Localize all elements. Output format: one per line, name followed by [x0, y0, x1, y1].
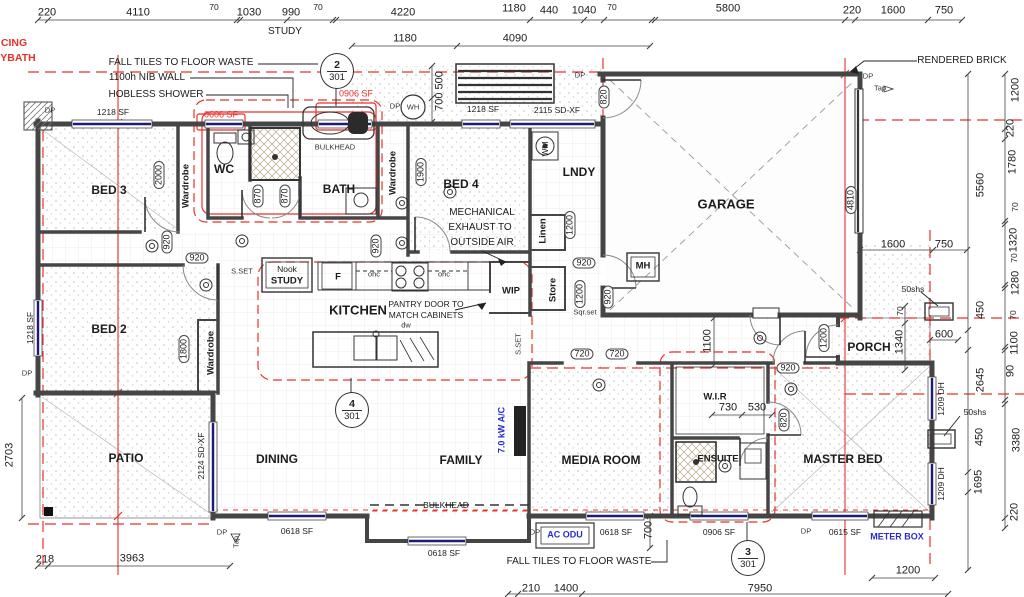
- ac-odu-label: AC ODU: [547, 531, 583, 540]
- downpipe-label: DP: [863, 72, 873, 80]
- dim-label: 730: [719, 403, 737, 414]
- door-size-tag: 1200: [819, 324, 830, 352]
- washing-machine-label: WM: [541, 141, 550, 156]
- door-size-tag: 1200: [565, 211, 576, 239]
- dim-label: 1780: [1008, 150, 1019, 174]
- annotation: PANTRY DOOR TO: [388, 300, 463, 309]
- door-size-tag: 870: [280, 184, 291, 207]
- window-label: 1218 SF: [97, 108, 129, 117]
- door-size-tag: 920: [572, 258, 595, 269]
- downpipe-label: DP: [45, 106, 55, 114]
- dim-label: 1340: [895, 330, 906, 354]
- door-size-tag: 820: [779, 408, 790, 431]
- room-label-bed3: BED 3: [91, 184, 126, 196]
- post-label: 50shs: [964, 408, 987, 417]
- dim-label: 600: [935, 330, 953, 341]
- room-label-wc: WC: [214, 163, 234, 175]
- annotation: EXHAUST TO: [448, 223, 511, 233]
- edge-text: CING: [1, 38, 27, 49]
- downpipe-label: DP: [390, 102, 400, 110]
- dim-label: 1040: [572, 6, 596, 17]
- dim-label: 1180: [393, 34, 417, 45]
- drawing-ref-circle: 2 301: [320, 53, 354, 89]
- dim-label: 750: [935, 6, 953, 17]
- door-size-tag: 1800: [179, 335, 190, 363]
- dishwasher-label: dw: [401, 321, 411, 329]
- dim-label: 220: [843, 6, 861, 17]
- annotation: 1100h NIB WALL: [109, 73, 185, 83]
- room-label-patio: PATIO: [109, 452, 144, 464]
- dim-label: 70: [896, 306, 905, 315]
- annotation: Sqr.set: [573, 308, 596, 316]
- room-label-wardrobe: Wardrobe: [181, 164, 191, 208]
- dim-label: 4220: [391, 8, 415, 19]
- dim-label: 4110: [126, 8, 150, 19]
- dim-label: 530: [748, 403, 766, 414]
- room-label-dining: DINING: [256, 453, 298, 465]
- dim-label: 220: [1010, 503, 1021, 521]
- ref-sheet: 301: [740, 559, 756, 570]
- window-label: 0618 SF: [428, 549, 460, 558]
- room-label-bed4: BED 4: [443, 178, 478, 190]
- dim-label: 5800: [716, 4, 740, 15]
- dim-label: 1030: [237, 8, 261, 19]
- dim-label: 2645: [976, 368, 987, 392]
- door-size-tag: 2000: [154, 161, 165, 189]
- downpipe-label: DP: [217, 528, 227, 536]
- annotation: BULKHEAD: [315, 143, 355, 151]
- dim-label: 1100: [703, 329, 714, 353]
- dim-label: 1600: [881, 6, 905, 17]
- dim-label: 210: [522, 584, 540, 595]
- dim-label: 450: [976, 301, 987, 319]
- ac-label: 7.0 kW A/C: [498, 407, 507, 453]
- dim-label: 1180: [502, 4, 526, 15]
- dim-label: 3380: [1012, 428, 1023, 452]
- downpipe-label: DP: [801, 527, 811, 535]
- room-label-garage: GARAGE: [697, 198, 754, 211]
- labels-layer: 2204110701030990704220118044010407058002…: [0, 0, 1024, 597]
- annotation: RENDERED BRICK: [917, 56, 1006, 66]
- fridge-label: F: [335, 272, 341, 282]
- door-size-tag: 920: [371, 234, 382, 257]
- room-label-porch: PORCH: [847, 341, 890, 353]
- door-size-tag: 1900: [416, 158, 427, 186]
- dim-label: 1200: [896, 566, 920, 577]
- annotation: MATCH CABINETS: [389, 311, 463, 320]
- downpipe-label: DP: [530, 528, 540, 536]
- door-size-tag: 820: [599, 85, 610, 108]
- room-label-wip: WIP: [502, 286, 520, 296]
- window-size-label: 1209 DH: [937, 467, 946, 501]
- dim-label: 440: [540, 6, 558, 17]
- downpipe-label: DP: [22, 369, 32, 377]
- annotation: BULKHEAD: [423, 501, 469, 510]
- window-label: 1218 SF: [26, 312, 35, 344]
- room-label-linen: Linen: [538, 218, 548, 243]
- room-label-media: MEDIA ROOM: [562, 454, 641, 466]
- window-label: 0618 SF: [281, 527, 313, 536]
- floor-plan: 2204110701030990704220118044010407058002…: [0, 0, 1024, 597]
- dim-label: 1200: [1011, 78, 1022, 102]
- door-size-tag: 920: [162, 230, 173, 253]
- label-nook: Nook: [277, 265, 297, 274]
- dim-label: 1695: [974, 470, 985, 494]
- downpipe-label: DP: [575, 71, 585, 79]
- overhead-cupboard-label: ohc: [438, 270, 450, 278]
- room-label-ensuite: ENSUITE: [697, 454, 738, 464]
- annotation: FALL TILES TO FLOOR WASTE: [507, 557, 652, 567]
- door-size-tag: 920: [776, 363, 799, 374]
- room-label-laundry: LNDY: [563, 166, 596, 178]
- room-label-store: Store: [548, 278, 558, 302]
- door-size-tag: 920: [603, 285, 614, 308]
- annotation: OUTSIDE AIR: [450, 238, 513, 248]
- dim-label: 700: [644, 521, 655, 539]
- label-study-nook: STUDY: [271, 276, 303, 286]
- room-label-bed2: BED 2: [91, 323, 126, 335]
- dim-label: 1320: [1009, 228, 1020, 252]
- dim-label: 70: [209, 3, 218, 12]
- tap-label: Tap: [874, 84, 886, 92]
- dim-label: 1400: [554, 584, 578, 595]
- dim-label: 3963: [120, 554, 144, 565]
- dim-label: 70: [1009, 310, 1018, 319]
- dim-label: 5560: [976, 173, 987, 197]
- dim-label: 70: [607, 3, 616, 12]
- dim-label: 70: [1011, 202, 1020, 211]
- dim-label: 450: [975, 428, 986, 446]
- annotation: MECHANICAL: [449, 208, 515, 218]
- door-size-tag: 1200: [575, 280, 586, 308]
- door-size-tag: 870: [253, 184, 264, 207]
- window-label: 0615 SF: [829, 528, 861, 537]
- post-label: 50shs: [902, 285, 925, 294]
- dim-label: 4090: [503, 34, 527, 45]
- room-label-master: MASTER BED: [803, 453, 882, 465]
- dim-label: 1100: [1010, 331, 1021, 355]
- room-label-wardrobe: Wardrobe: [388, 151, 398, 195]
- dim-label: 70: [313, 3, 322, 12]
- window-label: 2124 SD-XF: [197, 433, 206, 480]
- window-label: 0906 SF: [339, 90, 373, 99]
- drawing-ref-circle: 3 301: [731, 540, 765, 576]
- window-label: 0606 SF: [204, 111, 238, 120]
- ref-number: 4: [342, 398, 362, 411]
- dim-label: 218: [36, 555, 54, 566]
- ref-sheet: 301: [344, 411, 360, 422]
- room-label-family: FAMILY: [440, 454, 483, 466]
- room-label-wardrobe: Wardrobe: [206, 331, 216, 375]
- dim-label: 990: [282, 8, 300, 19]
- dim-label: 70: [1010, 253, 1019, 262]
- door-size-tag: 920: [185, 253, 208, 264]
- overhead-cupboard-label: ohc: [368, 270, 380, 278]
- room-label-wir: W.I.R: [703, 392, 726, 402]
- annotation: HOBLESS SHOWER: [108, 90, 203, 100]
- edge-text: YBATH: [0, 53, 35, 64]
- tap-label: Tap: [232, 536, 240, 548]
- ref-number: 3: [738, 546, 758, 559]
- door-size-tag: 4810: [846, 186, 857, 214]
- water-heater-label: WH: [407, 103, 420, 111]
- dim-label: 700 500: [435, 71, 446, 111]
- window-label: 2115 SD-XF: [534, 106, 580, 115]
- ref-number: 2: [327, 59, 347, 72]
- ref-sheet: 301: [329, 72, 345, 83]
- window-label: 0906 SF: [703, 528, 735, 537]
- window-label: 0618 SF: [600, 528, 632, 537]
- dim-label: 90: [1006, 365, 1017, 377]
- dim-label: 1600: [881, 240, 905, 251]
- door-size-tag: 720: [605, 349, 628, 360]
- annotation: FALL TILES TO FLOOR WASTE: [109, 58, 254, 68]
- annotation: S.SET: [231, 267, 253, 275]
- room-label-bath: BATH: [323, 183, 355, 195]
- dim-label: 7950: [748, 584, 772, 595]
- drawing-ref-circle: 4 301: [335, 392, 369, 428]
- dim-label: 1280: [1011, 271, 1022, 295]
- window-label: 1218 SF: [467, 105, 499, 114]
- manhole-label: MH: [636, 261, 651, 271]
- dim-label: 2703: [5, 443, 16, 467]
- annotation: S.SET: [514, 333, 522, 355]
- door-size-tag: 720: [570, 349, 593, 360]
- area-label-study: STUDY: [268, 27, 302, 37]
- dim-label: 220: [1006, 119, 1017, 137]
- dim-label: 750: [935, 240, 953, 251]
- window-size-label: 1209 DH: [937, 382, 946, 416]
- dim-label: 220: [38, 8, 56, 19]
- meter-box-label: METER BOX: [870, 533, 924, 542]
- room-label-kitchen: KITCHEN: [329, 304, 387, 317]
